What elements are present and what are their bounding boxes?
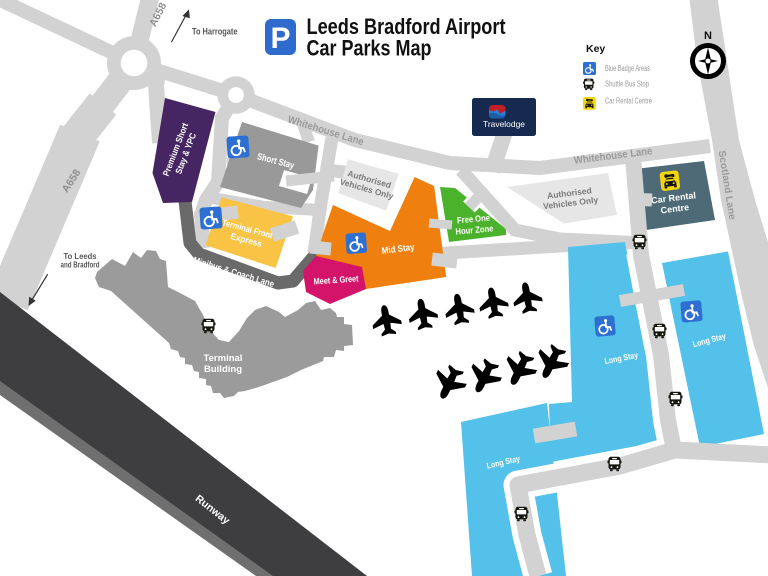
svg-text:Blue Badge Areas: Blue Badge Areas	[605, 64, 650, 73]
svg-text:Key: Key	[586, 43, 605, 55]
svg-text:Terminal: Terminal	[204, 353, 243, 364]
svg-text:Car Parks Map: Car Parks Map	[307, 36, 432, 61]
svg-text:Shuttle Bus Stop: Shuttle Bus Stop	[605, 80, 649, 89]
svg-text:Car Rental Centre: Car Rental Centre	[605, 97, 652, 106]
svg-text:Travelodge: Travelodge	[483, 119, 525, 129]
svg-text:P: P	[270, 22, 290, 55]
svg-text:N: N	[704, 30, 712, 42]
svg-text:To Harrogate: To Harrogate	[192, 27, 238, 38]
svg-text:Building: Building	[204, 364, 242, 375]
svg-text:and Bradford: and Bradford	[61, 260, 100, 270]
